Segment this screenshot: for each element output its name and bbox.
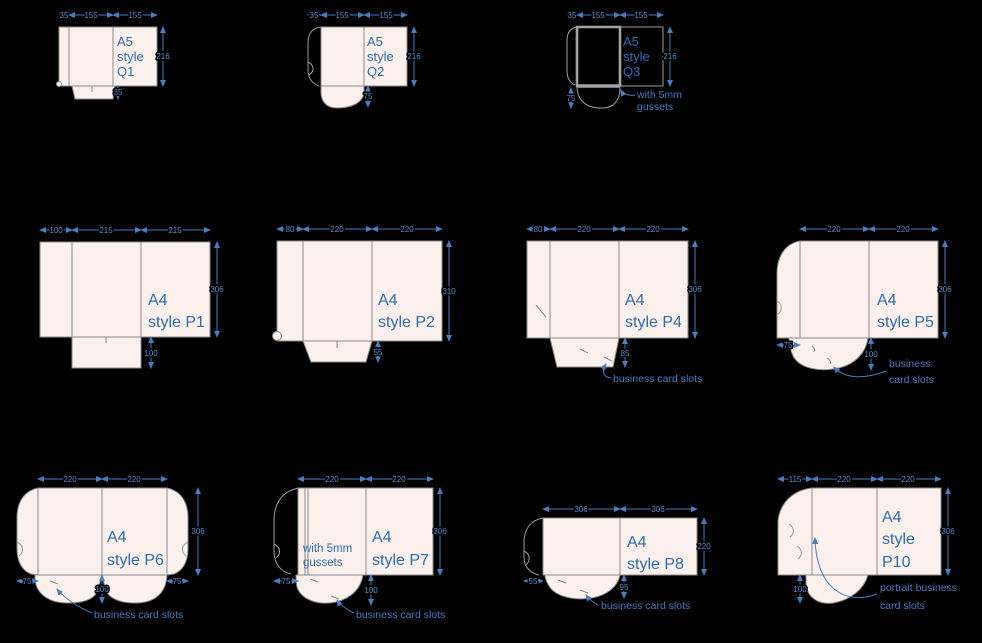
svg-text:155: 155 xyxy=(634,11,648,20)
svg-text:155: 155 xyxy=(379,11,393,20)
p1-dim-height: 306 xyxy=(210,242,224,337)
p2-dim-panel2: 220 xyxy=(372,225,442,234)
svg-text:155: 155 xyxy=(84,11,98,20)
p10-annotation-line2: card slots xyxy=(880,600,925,612)
svg-text:155: 155 xyxy=(128,11,142,20)
p2-dim-pocket: 55 xyxy=(374,341,383,362)
q2-label-line2: style xyxy=(367,49,394,64)
svg-text:220: 220 xyxy=(330,225,344,234)
p10-dim-panel2: 220 xyxy=(877,475,941,484)
q3-pocket-outline xyxy=(577,86,620,108)
diagram-a5-q1: 35 155 155 216 35 A5 style Q1 xyxy=(57,11,171,99)
p8-flap-outline xyxy=(524,518,543,575)
diagram-a4-p6: 220 220 306 75 75 100 business card slot… xyxy=(17,475,205,621)
p6-right-flap xyxy=(167,488,188,575)
svg-text:95: 95 xyxy=(620,583,629,592)
svg-text:55: 55 xyxy=(374,348,383,357)
q2-glue-flap-outline xyxy=(308,27,321,86)
q1-label-line2: style xyxy=(117,49,144,64)
p6-dim-panel1: 220 xyxy=(38,475,102,484)
q3-label-line1: A5 xyxy=(623,34,639,49)
q1-label-line3: Q1 xyxy=(117,64,134,79)
p8-label-line1: A4 xyxy=(627,534,647,551)
diagram-a5-q3: 35 155 155 216 75 with 5mm gussets A5 st… xyxy=(567,11,683,113)
svg-text:310: 310 xyxy=(442,287,456,296)
svg-text:80: 80 xyxy=(534,225,543,234)
p2-thumb-notch xyxy=(273,332,282,341)
svg-text:220: 220 xyxy=(901,475,915,484)
p4-bottom-flap xyxy=(550,338,619,367)
svg-text:100: 100 xyxy=(864,350,878,359)
q2-dim-height: 216 xyxy=(407,27,421,86)
p7-dim-panel1: 220 xyxy=(298,475,366,484)
p7-annotation: business card slots xyxy=(356,609,445,621)
p6-left-pocket xyxy=(35,575,102,603)
p2-label-line1: A4 xyxy=(378,292,398,309)
p5-label-line2: style P5 xyxy=(877,314,934,331)
q1-dim-flap: 35 xyxy=(59,11,69,20)
diagram-a5-q2: 35 155 155 216 75 A5 style Q2 xyxy=(308,11,421,108)
svg-text:306: 306 xyxy=(688,285,702,294)
p7-gusset-note-line1: with 5mm xyxy=(302,543,352,555)
svg-text:155: 155 xyxy=(335,11,349,20)
p1-dim-flap: 100 xyxy=(40,226,72,235)
p5-label-line1: A4 xyxy=(877,292,897,309)
svg-text:220: 220 xyxy=(127,475,141,484)
svg-text:35: 35 xyxy=(568,11,577,20)
q1-dim-panel2: 155 xyxy=(113,11,157,20)
q1-dim-pocket: 35 xyxy=(114,86,123,99)
p4-dim-panel2: 220 xyxy=(619,225,688,234)
q2-dim-panel2: 155 xyxy=(364,11,407,20)
p7-flap-outline xyxy=(274,488,298,574)
svg-text:220: 220 xyxy=(63,475,77,484)
svg-text:100: 100 xyxy=(49,226,63,235)
p7-gusset-note-line2: gussets xyxy=(303,557,343,569)
dielines-svg: 35 155 155 216 35 A5 style Q1 35 155 155… xyxy=(0,0,982,643)
q1-dim-height: 216 xyxy=(156,27,170,86)
svg-text:85: 85 xyxy=(621,349,630,358)
svg-text:220: 220 xyxy=(400,225,414,234)
p4-annotation: business card slots xyxy=(613,373,702,385)
q2-dim-flap: 35 xyxy=(308,11,321,20)
svg-text:306: 306 xyxy=(941,527,955,536)
p4-label-line1: A4 xyxy=(625,292,645,309)
p6-label-line1: A4 xyxy=(107,529,127,546)
p8-rounded-pocket xyxy=(545,575,620,599)
p2-label-line2: style P2 xyxy=(378,314,435,331)
svg-text:75: 75 xyxy=(784,341,793,350)
q3-dim-height: 216 xyxy=(663,27,677,86)
q3-label-line3: Q3 xyxy=(623,64,640,79)
p10-label-line2: style xyxy=(882,531,915,548)
p7-dim-height: 306 xyxy=(433,488,447,575)
svg-text:80: 80 xyxy=(286,225,295,234)
q2-label-line3: Q2 xyxy=(367,64,384,79)
svg-text:220: 220 xyxy=(697,542,711,551)
p4-label-line2: style P4 xyxy=(625,314,682,331)
p7-dim-panel2: 220 xyxy=(366,475,433,484)
svg-text:306: 306 xyxy=(938,285,952,294)
q2-label-line1: A5 xyxy=(367,34,383,49)
q3-dim-panel2: 155 xyxy=(620,11,663,20)
diagram-a4-p5: 220 220 306 75 100 business card slots A… xyxy=(777,225,952,386)
svg-text:35: 35 xyxy=(114,88,123,97)
p10-dim-pocket: 100 xyxy=(793,575,807,603)
svg-text:100: 100 xyxy=(364,586,378,595)
p4-dim-flap: 80 xyxy=(527,225,550,234)
q3-gusset-note-line2: gussets xyxy=(637,101,673,113)
p8-dim-height: 220 xyxy=(697,518,711,575)
svg-text:220: 220 xyxy=(837,475,851,484)
p5-rounded-pocket xyxy=(789,338,868,370)
p6-dim-panel2: 220 xyxy=(102,475,167,484)
svg-text:306: 306 xyxy=(191,527,205,536)
svg-text:216: 216 xyxy=(407,52,421,61)
p8-dim-panel1: 306 xyxy=(543,505,620,514)
diagram-a4-p8: 306 306 220 55 95 business card slots A4… xyxy=(524,505,711,612)
q3-dim-flap: 35 xyxy=(567,11,577,20)
p8-annotation: business card slots xyxy=(601,600,690,612)
p7-dim-pocket: 100 xyxy=(364,575,378,605)
svg-text:75: 75 xyxy=(567,94,576,103)
p8-dim-panel2: 306 xyxy=(620,505,697,514)
folder-dielines-canvas: 35 155 155 216 35 A5 style Q1 35 155 155… xyxy=(0,0,982,643)
svg-text:216: 216 xyxy=(663,52,677,61)
p6-dim-flap-right: 75 xyxy=(167,577,188,586)
p2-dim-flap: 80 xyxy=(277,225,303,234)
p7-dim-flap: 75 xyxy=(274,577,298,586)
p4-dim-pocket: 85 xyxy=(621,338,630,367)
q1-dim-panel1: 155 xyxy=(69,11,113,20)
svg-text:75: 75 xyxy=(173,577,182,586)
diagram-a4-p10: 115 220 220 306 100 portrait business ca… xyxy=(778,475,957,612)
p7-rounded-pocket xyxy=(296,575,363,603)
svg-text:75: 75 xyxy=(282,577,291,586)
svg-text:35: 35 xyxy=(310,11,319,20)
p2-dim-height: 310 xyxy=(442,241,456,341)
svg-text:220: 220 xyxy=(646,225,660,234)
p5-rounded-flap xyxy=(777,241,800,338)
svg-text:115: 115 xyxy=(789,475,802,484)
svg-text:100: 100 xyxy=(95,585,109,594)
svg-text:55: 55 xyxy=(529,577,538,586)
q3-dim-pocket: 75 xyxy=(567,88,576,108)
q2-rounded-pocket xyxy=(321,86,364,108)
q1-label-line1: A5 xyxy=(117,34,133,49)
p10-wide-flap xyxy=(778,488,812,575)
p10-dim-height: 306 xyxy=(941,488,955,575)
p8-dim-pocket: 95 xyxy=(620,575,629,598)
svg-text:220: 220 xyxy=(325,475,339,484)
p10-label-line3: P10 xyxy=(882,554,911,571)
svg-text:75: 75 xyxy=(364,92,373,101)
svg-text:220: 220 xyxy=(827,225,841,234)
p7-label-line2: style P7 xyxy=(372,552,429,569)
q3-gusset-panel xyxy=(577,27,620,86)
p10-annotation-line1: portrait business xyxy=(880,582,957,594)
diagram-a4-p2: 80 220 220 310 55 A4 style P2 xyxy=(273,225,457,362)
p1-label-line2: style P1 xyxy=(148,314,205,331)
q3-gusset-note-line1: with 5mm xyxy=(636,89,682,101)
q2-dim-pocket: 75 xyxy=(364,86,373,107)
p6-left-flap xyxy=(17,488,38,575)
svg-text:35: 35 xyxy=(60,11,69,20)
q3-glue-flap-outline xyxy=(567,27,577,85)
svg-text:155: 155 xyxy=(591,11,605,20)
svg-text:306: 306 xyxy=(433,527,447,536)
p8-label-line2: style P8 xyxy=(627,556,684,573)
q2-dim-panel1: 155 xyxy=(321,11,364,20)
p6-annotation: business card slots xyxy=(94,609,183,621)
p1-label-line1: A4 xyxy=(148,292,168,309)
p1-dim-panel2: 215 xyxy=(141,226,210,235)
p5-annotation-line2: card slots xyxy=(889,374,934,386)
p4-dim-panel1: 220 xyxy=(550,225,619,234)
p5-dim-height: 306 xyxy=(938,241,952,338)
svg-text:215: 215 xyxy=(99,226,113,235)
q1-thumb-notch xyxy=(57,82,62,87)
p10-rounded-pocket xyxy=(806,575,868,603)
diagram-a4-p4: 80 220 220 306 85 business card slots A4… xyxy=(527,225,702,385)
diagram-a4-p7: 220 220 306 75 100 with 5mm gussets busi… xyxy=(274,475,447,621)
diagram-a4-p1: 100 215 215 306 100 A4 style P1 xyxy=(40,226,224,368)
p5-dim-panel2: 220 xyxy=(869,225,938,234)
svg-text:75: 75 xyxy=(23,577,32,586)
p8-dim-flap: 55 xyxy=(524,577,543,586)
p6-dim-height: 306 xyxy=(191,488,205,575)
p4-dim-height: 306 xyxy=(688,241,702,338)
svg-text:215: 215 xyxy=(168,226,182,235)
p1-dim-panel1: 215 xyxy=(72,226,141,235)
p6-right-pocket xyxy=(102,575,167,603)
svg-text:306: 306 xyxy=(651,505,665,514)
p5-dim-panel1: 220 xyxy=(800,225,869,234)
p6-label-line2: style P6 xyxy=(107,552,164,569)
svg-text:100: 100 xyxy=(144,349,158,358)
q3-dim-panel1: 155 xyxy=(577,11,620,20)
svg-text:220: 220 xyxy=(577,225,591,234)
p10-dim-flap: 115 xyxy=(778,475,812,484)
p10-label-line1: A4 xyxy=(882,509,902,526)
svg-text:306: 306 xyxy=(574,505,588,514)
svg-text:220: 220 xyxy=(896,225,910,234)
svg-text:220: 220 xyxy=(392,475,406,484)
p5-annotation-line1: business xyxy=(889,358,930,370)
svg-text:216: 216 xyxy=(156,52,170,61)
svg-text:100: 100 xyxy=(793,585,807,594)
q3-label-line2: style xyxy=(623,49,650,64)
p1-dim-pocket: 100 xyxy=(144,337,158,368)
p7-label-line1: A4 xyxy=(372,529,392,546)
svg-text:306: 306 xyxy=(210,285,224,294)
q1-bottom-flap xyxy=(72,86,115,99)
p10-dim-panel1: 220 xyxy=(812,475,877,484)
p2-dim-panel1: 220 xyxy=(303,225,372,234)
